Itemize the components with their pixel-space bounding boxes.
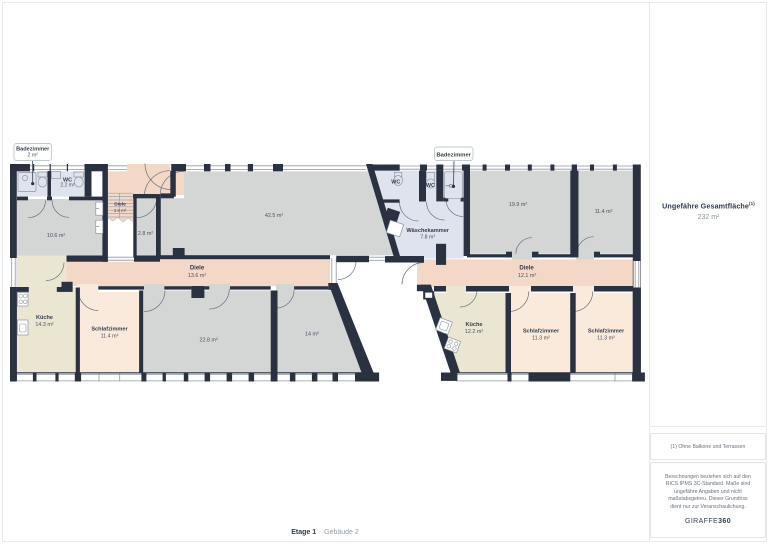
svg-text:Schlafzimmer: Schlafzimmer [588, 329, 625, 335]
svg-text:Diele: Diele [114, 202, 126, 208]
svg-text:19.9 m²: 19.9 m² [509, 202, 527, 208]
svg-text:2.8 m²: 2.8 m² [138, 231, 153, 237]
svg-text:22.8 m²: 22.8 m² [200, 337, 218, 343]
svg-text:11.3 m²: 11.3 m² [532, 336, 550, 342]
svg-text:Schlafzimmer: Schlafzimmer [91, 327, 128, 333]
svg-text:Schlafzimmer: Schlafzimmer [523, 329, 560, 335]
svg-text:Wäschekammer: Wäschekammer [406, 228, 449, 234]
svg-text:Diele: Diele [190, 266, 205, 272]
svg-text:Diele: Diele [519, 266, 534, 272]
svg-text:7.8 m²: 7.8 m² [420, 235, 435, 241]
svg-text:14.3 m²: 14.3 m² [35, 322, 53, 328]
svg-text:12.2 m²: 12.2 m² [465, 329, 483, 335]
svg-text:Badezimmer: Badezimmer [436, 152, 471, 158]
svg-text:14 m²: 14 m² [305, 332, 319, 338]
svg-text:11.4 m²: 11.4 m² [595, 209, 613, 215]
svg-text:13.6 m²: 13.6 m² [188, 273, 206, 279]
svg-text:11.4 m²: 11.4 m² [101, 334, 119, 340]
svg-text:12.1 m²: 12.1 m² [518, 273, 536, 279]
svg-text:42.5 m²: 42.5 m² [265, 213, 283, 219]
svg-text:10.6 m²: 10.6 m² [47, 233, 65, 239]
svg-text:11.3 m²: 11.3 m² [597, 336, 615, 342]
svg-text:Küche: Küche [465, 322, 482, 328]
svg-text:WC: WC [426, 183, 435, 189]
svg-text:WC: WC [391, 180, 400, 186]
svg-text:2 m²: 2 m² [28, 153, 39, 159]
svg-text:Küche: Küche [36, 315, 53, 321]
svg-text:2.2 m²: 2.2 m² [60, 182, 75, 188]
svg-text:3.8 m²: 3.8 m² [114, 208, 127, 213]
